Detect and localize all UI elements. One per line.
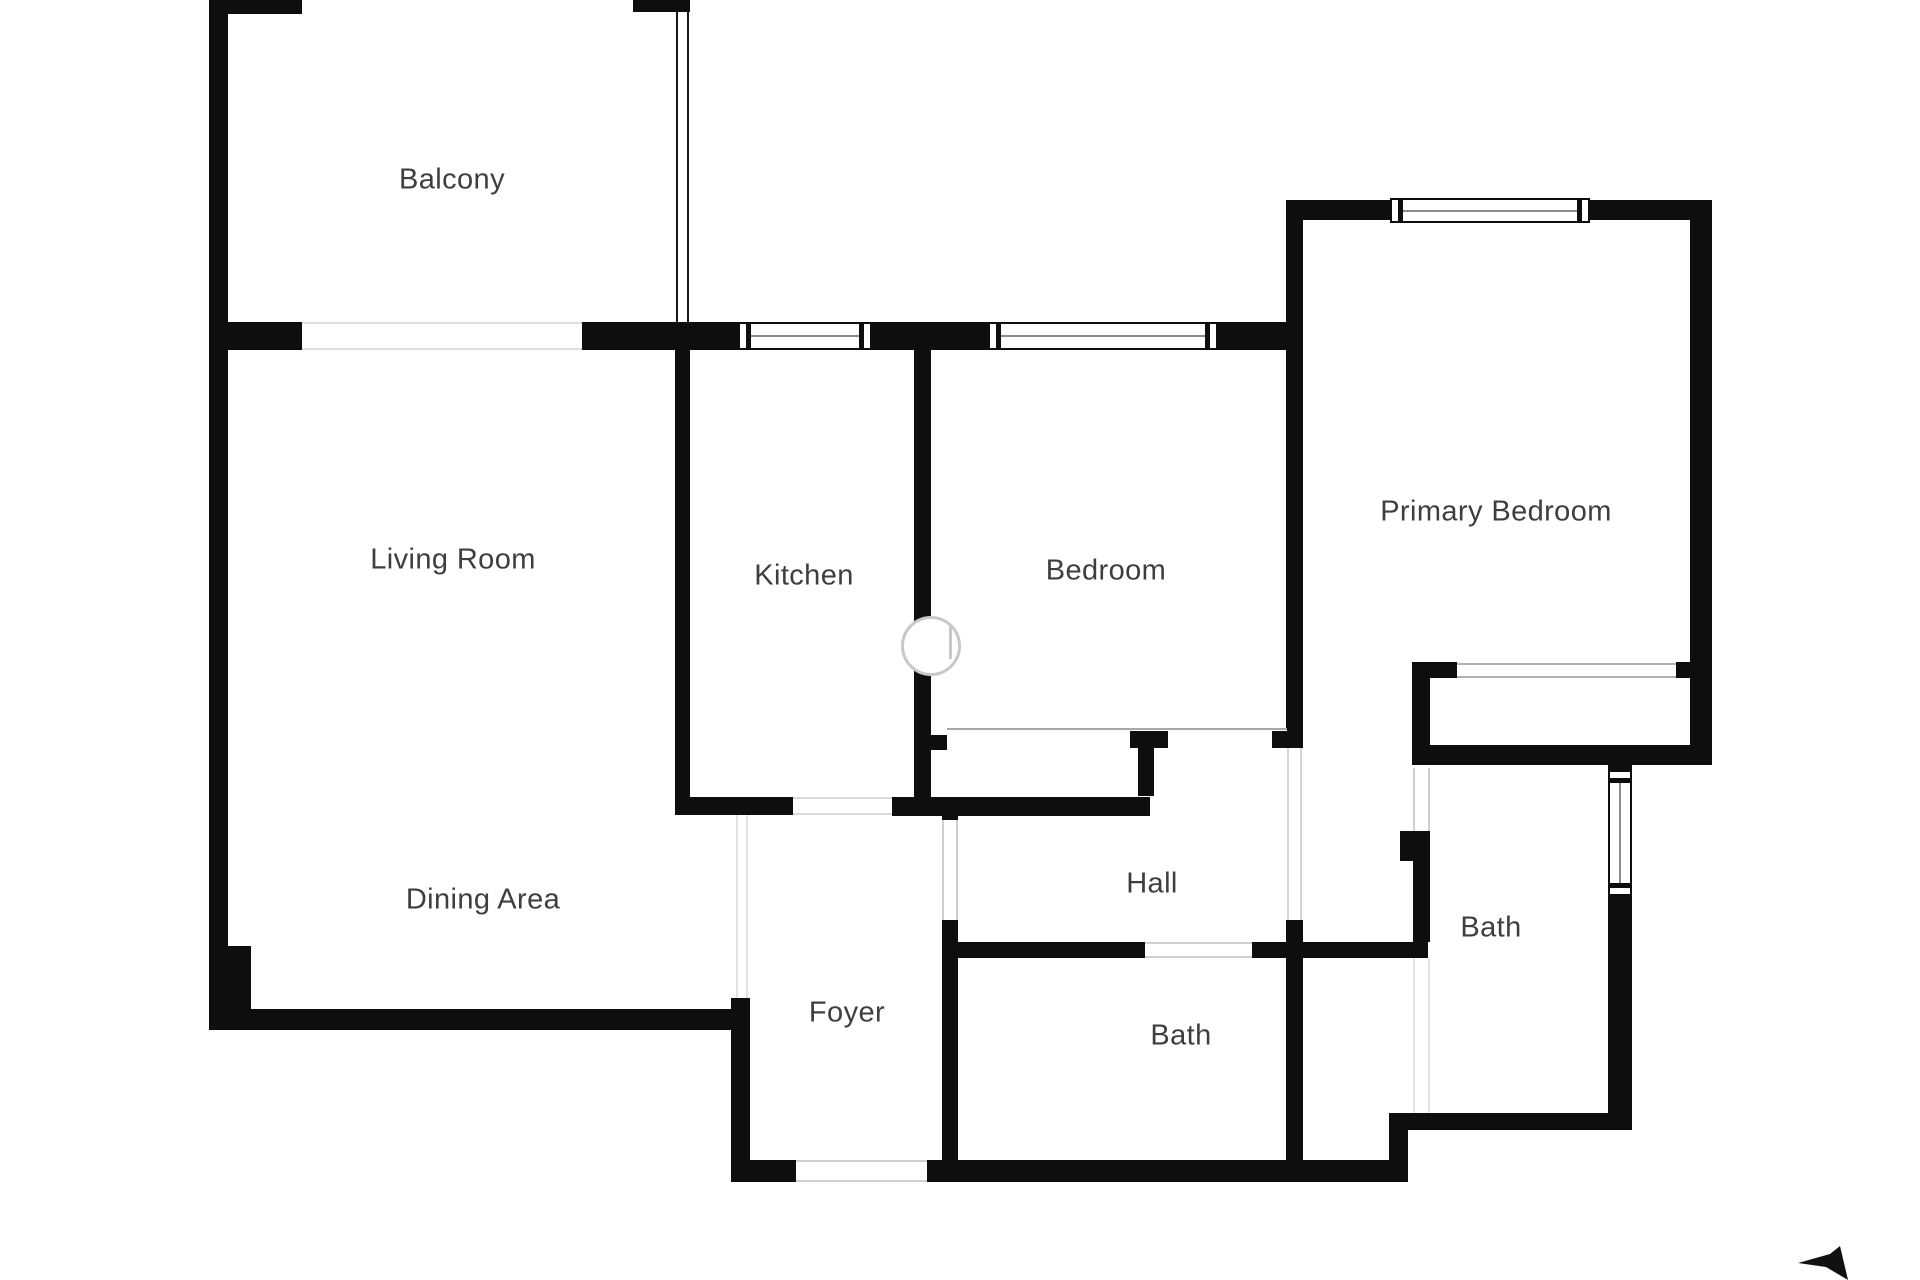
compass-arrow-icon — [0, 0, 1920, 1280]
floor-plan: BalconyLiving RoomKitchenBedroomPrimary … — [0, 0, 1920, 1280]
